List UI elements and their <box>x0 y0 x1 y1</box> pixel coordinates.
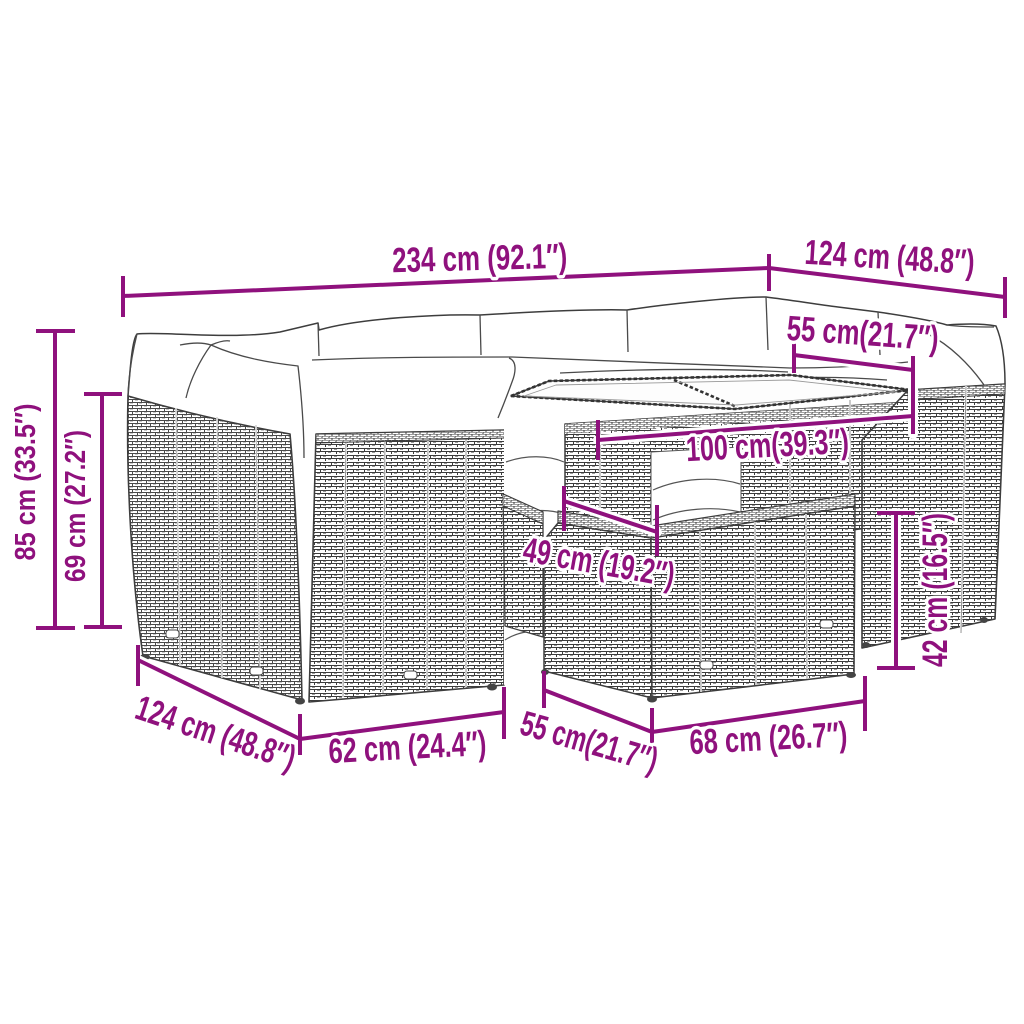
svg-text:234 cm (92.1″): 234 cm (92.1″) <box>392 237 568 281</box>
svg-text:85 cm (33.5″): 85 cm (33.5″) <box>10 404 42 561</box>
svg-text:55 cm(21.7″): 55 cm(21.7″) <box>516 704 662 780</box>
svg-text:62 cm (24.4″): 62 cm (24.4″) <box>327 724 487 771</box>
svg-text:69 cm (27.2″): 69 cm (27.2″) <box>60 430 92 582</box>
svg-text:42 cm (16.5″): 42 cm (16.5″) <box>916 513 955 667</box>
svg-text:68 cm (26.7″): 68 cm (26.7″) <box>688 715 848 762</box>
